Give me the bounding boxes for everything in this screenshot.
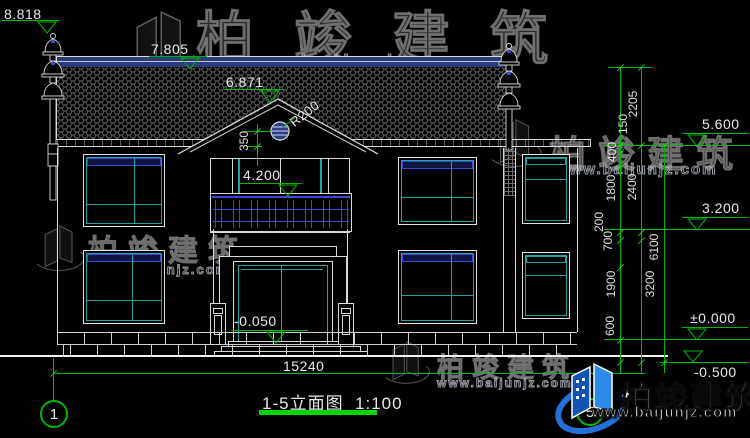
window-wing-1f xyxy=(522,252,570,319)
level-triangle-icon xyxy=(260,90,280,103)
brand-url: www.baijunjz.com xyxy=(592,404,737,421)
wing-corner-line-b xyxy=(515,148,516,332)
balcony-door-jamb xyxy=(238,159,240,193)
dim-600: 600 xyxy=(603,304,617,348)
level-triangle-icon xyxy=(687,218,707,231)
balcony-post xyxy=(328,158,329,194)
level-triangle-icon xyxy=(180,57,200,70)
railing-fret-pattern xyxy=(213,200,349,228)
level-triangle-icon xyxy=(683,350,703,363)
eave-right-end xyxy=(590,139,591,147)
dim-chain-line-b xyxy=(641,67,642,373)
watermark-mid-left-logo-icon xyxy=(33,222,85,282)
level-triangle-icon xyxy=(37,21,57,34)
level-balcony: 4.200 xyxy=(243,167,281,183)
dim-chain-line-c xyxy=(664,145,665,373)
level-ground: ±0.000 xyxy=(690,310,736,326)
window-right-2f xyxy=(398,157,477,225)
level-gable: 6.871 xyxy=(226,74,264,90)
window-lintel-band xyxy=(87,158,161,166)
ground-line xyxy=(0,355,668,357)
right-finial xyxy=(497,42,521,152)
window-left-2f xyxy=(83,154,165,227)
cad-elevation-drawing: 柏竣建筑 www.baijunjz.com 柏竣建筑 www.baijunjz.… xyxy=(0,0,750,438)
window-mullion xyxy=(134,158,135,223)
level-eave: 5.600 xyxy=(702,116,740,132)
brick-plinth xyxy=(57,332,577,357)
dim-overall: 15240 xyxy=(283,358,324,374)
window-frame xyxy=(86,157,162,224)
wall-left-edge xyxy=(57,148,58,332)
brick-row xyxy=(57,333,577,345)
level-triangle-icon xyxy=(687,328,707,341)
dim-2400: 2400 xyxy=(625,165,639,209)
level-triangle-icon xyxy=(687,134,707,147)
door-top-rail xyxy=(241,269,323,270)
level-porch: -0.050 xyxy=(234,313,277,329)
axis-bubble-1: 1 xyxy=(40,400,68,428)
window-wing-2f xyxy=(522,154,570,224)
balcony-slab-line xyxy=(210,232,350,233)
dim-700: 700 xyxy=(601,219,615,263)
dim-6100: 6100 xyxy=(647,225,661,269)
left-finial xyxy=(41,32,65,202)
level-triangle-icon xyxy=(278,184,298,197)
title-underline xyxy=(259,410,377,415)
dim-350: 350 xyxy=(237,119,251,163)
window-left-1f xyxy=(83,250,165,324)
gable xyxy=(170,92,390,162)
level-ridge: 7.805 xyxy=(151,41,189,57)
level-floor2: 3.200 xyxy=(702,200,740,216)
window-transom xyxy=(87,204,161,205)
wall-right-edge xyxy=(577,148,578,332)
dim-1900: 1900 xyxy=(604,262,618,306)
window-right-1f xyxy=(398,250,477,324)
wing-corner-quoin-grid xyxy=(504,148,515,196)
balcony-railing xyxy=(210,193,352,232)
balcony-door-jamb xyxy=(320,159,322,193)
balcony-post xyxy=(210,158,211,194)
level-triangle-icon xyxy=(266,331,286,344)
balcony-post xyxy=(349,158,350,194)
balcony-post xyxy=(232,158,233,194)
dim-1800: 1800 xyxy=(604,166,618,210)
